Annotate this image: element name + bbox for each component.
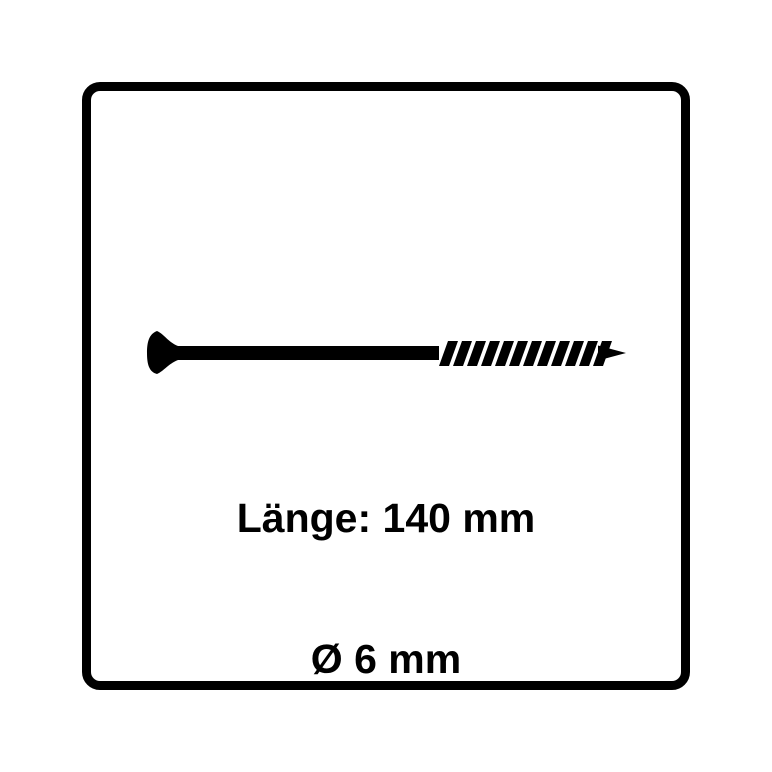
length-label: Länge: 140 mm [0, 495, 772, 542]
diameter-label: Ø 6 mm [0, 636, 772, 683]
screw-head [147, 331, 178, 374]
screw-thread [439, 341, 612, 366]
screw-tip [598, 346, 626, 361]
screw-illustration [136, 318, 636, 388]
dimension-text-block: Länge: 140 mm Ø 6 mm [0, 401, 772, 730]
screw-shank [174, 346, 439, 360]
